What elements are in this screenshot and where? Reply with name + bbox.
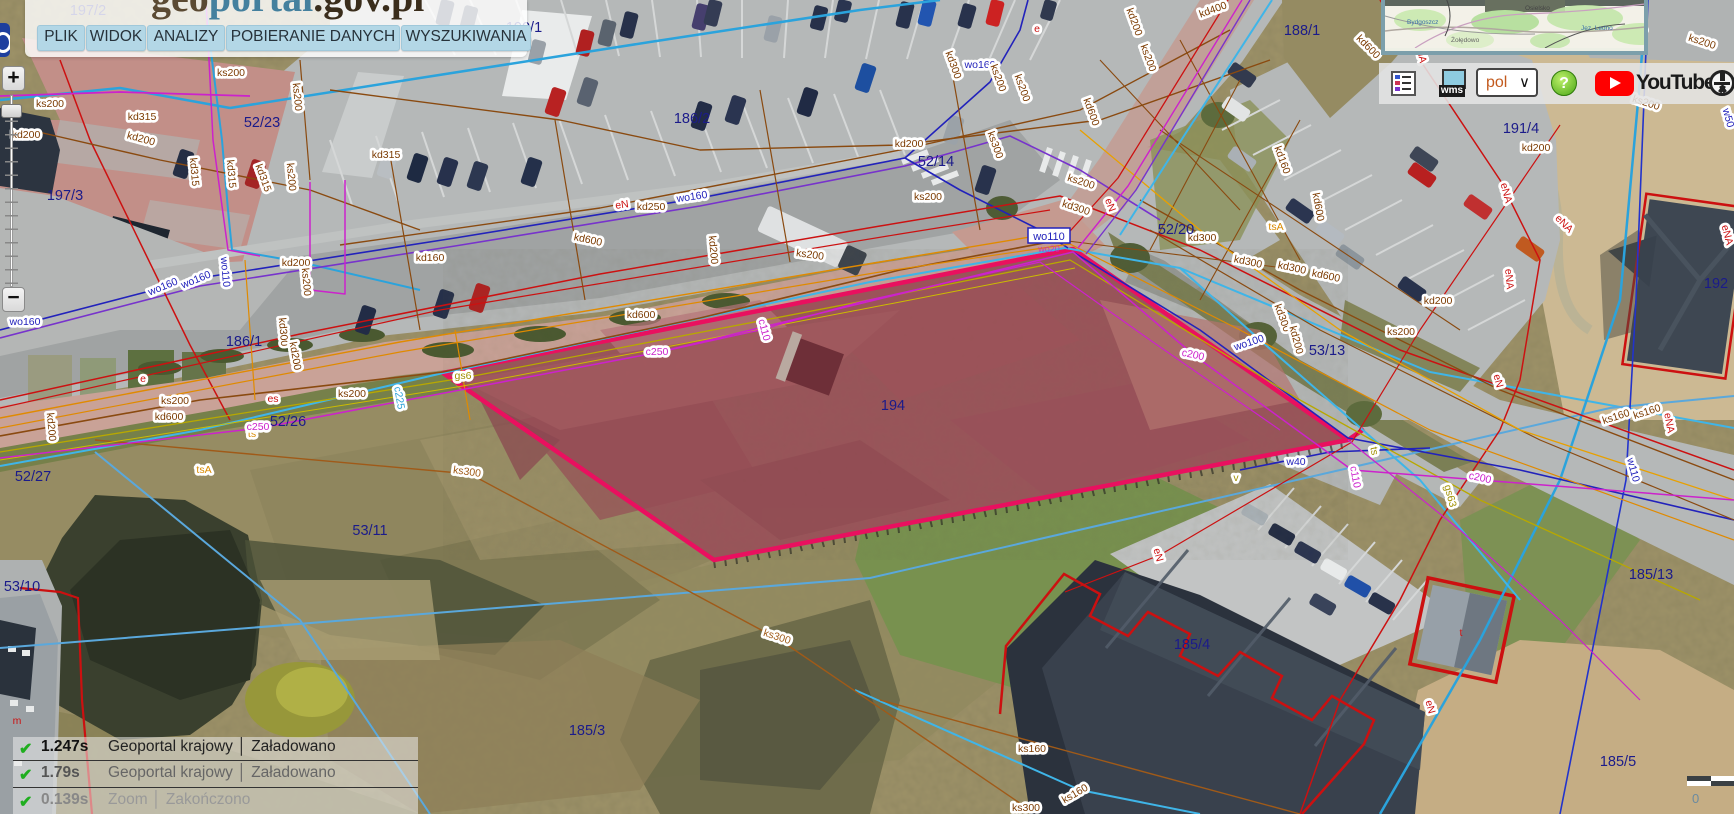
svg-text:192: 192 [1704, 276, 1728, 292]
svg-text:kd160: kd160 [416, 252, 445, 264]
svg-text:52/23: 52/23 [244, 115, 280, 131]
svg-text:53/10: 53/10 [4, 579, 40, 595]
svg-text:kd200: kd200 [1424, 295, 1453, 307]
svg-text:186/2: 186/2 [674, 111, 710, 127]
svg-text:53/11: 53/11 [352, 523, 387, 539]
svg-text:ks160: ks160 [1018, 743, 1046, 755]
svg-text:tsA: tsA [196, 464, 211, 476]
svg-text:wo160: wo160 [9, 316, 41, 328]
svg-text:es: es [267, 393, 278, 405]
svg-text:ks200: ks200 [299, 268, 313, 297]
svg-text:kd600: kd600 [627, 309, 656, 321]
svg-text:tsA: tsA [1268, 221, 1283, 233]
svg-text:v: v [1233, 472, 1239, 484]
svg-text:e: e [1034, 23, 1040, 35]
svg-text:kd315: kd315 [128, 111, 157, 123]
svg-text:52/26: 52/26 [270, 414, 306, 430]
svg-text:ks200: ks200 [290, 83, 304, 112]
svg-text:191/4: 191/4 [1503, 121, 1539, 137]
svg-text:186/1: 186/1 [226, 334, 262, 350]
svg-text:52/20: 52/20 [1158, 222, 1194, 238]
svg-text:194: 194 [881, 398, 905, 414]
svg-text:185/13: 185/13 [1629, 567, 1673, 583]
svg-text:eNA: eNA [1502, 268, 1516, 289]
svg-text:kd200: kd200 [706, 235, 720, 265]
svg-text:185/3: 185/3 [569, 723, 605, 739]
svg-text:kd200: kd200 [44, 412, 58, 442]
svg-text:197/3: 197/3 [47, 188, 83, 204]
svg-text:wo110: wo110 [1032, 231, 1065, 243]
svg-text:c250: c250 [646, 346, 669, 358]
svg-text:Bydgoszcz: Bydgoszcz [1407, 19, 1438, 26]
svg-text:52/27: 52/27 [15, 469, 51, 485]
svg-text:kd315: kd315 [187, 157, 201, 187]
svg-text:188/1: 188/1 [1284, 23, 1320, 39]
svg-text:53/13: 53/13 [1309, 343, 1345, 359]
svg-text:52/14: 52/14 [918, 154, 954, 170]
svg-text:eN: eN [615, 198, 630, 212]
svg-text:ks200: ks200 [1387, 326, 1415, 338]
svg-text:185/4: 185/4 [1174, 637, 1210, 653]
svg-text:kd200: kd200 [1522, 142, 1551, 154]
svg-text:m: m [13, 715, 22, 727]
svg-text:Żołędowo: Żołędowo [1451, 35, 1480, 44]
svg-text:ks200: ks200 [914, 191, 942, 203]
svg-text:wo20: wo20 [1037, 244, 1060, 254]
svg-text:c250: c250 [247, 421, 270, 433]
svg-text:e: e [140, 373, 146, 385]
svg-text:ks300: ks300 [1012, 802, 1040, 814]
svg-text:w40: w40 [1285, 456, 1305, 468]
svg-text:kd600: kd600 [155, 411, 184, 423]
svg-text:ks200: ks200 [161, 395, 189, 407]
svg-text:Jez. Ledno: Jez. Ledno [1581, 25, 1613, 32]
svg-text:ks200: ks200 [36, 98, 64, 110]
svg-text:t: t [1460, 627, 1463, 639]
svg-text:ks200: ks200 [284, 163, 298, 192]
svg-text:185/5: 185/5 [1600, 754, 1636, 770]
svg-text:kd200: kd200 [895, 138, 924, 150]
svg-text:kd315: kd315 [224, 159, 238, 189]
svg-text:kd250: kd250 [637, 201, 666, 213]
svg-text:Osielsko: Osielsko [1525, 5, 1550, 12]
svg-text:kd315: kd315 [372, 149, 401, 161]
svg-text:ks200: ks200 [217, 67, 245, 79]
svg-text:ks200: ks200 [338, 388, 366, 400]
svg-text:gs6: gs6 [455, 370, 472, 382]
svg-text:0: 0 [1692, 791, 1699, 806]
